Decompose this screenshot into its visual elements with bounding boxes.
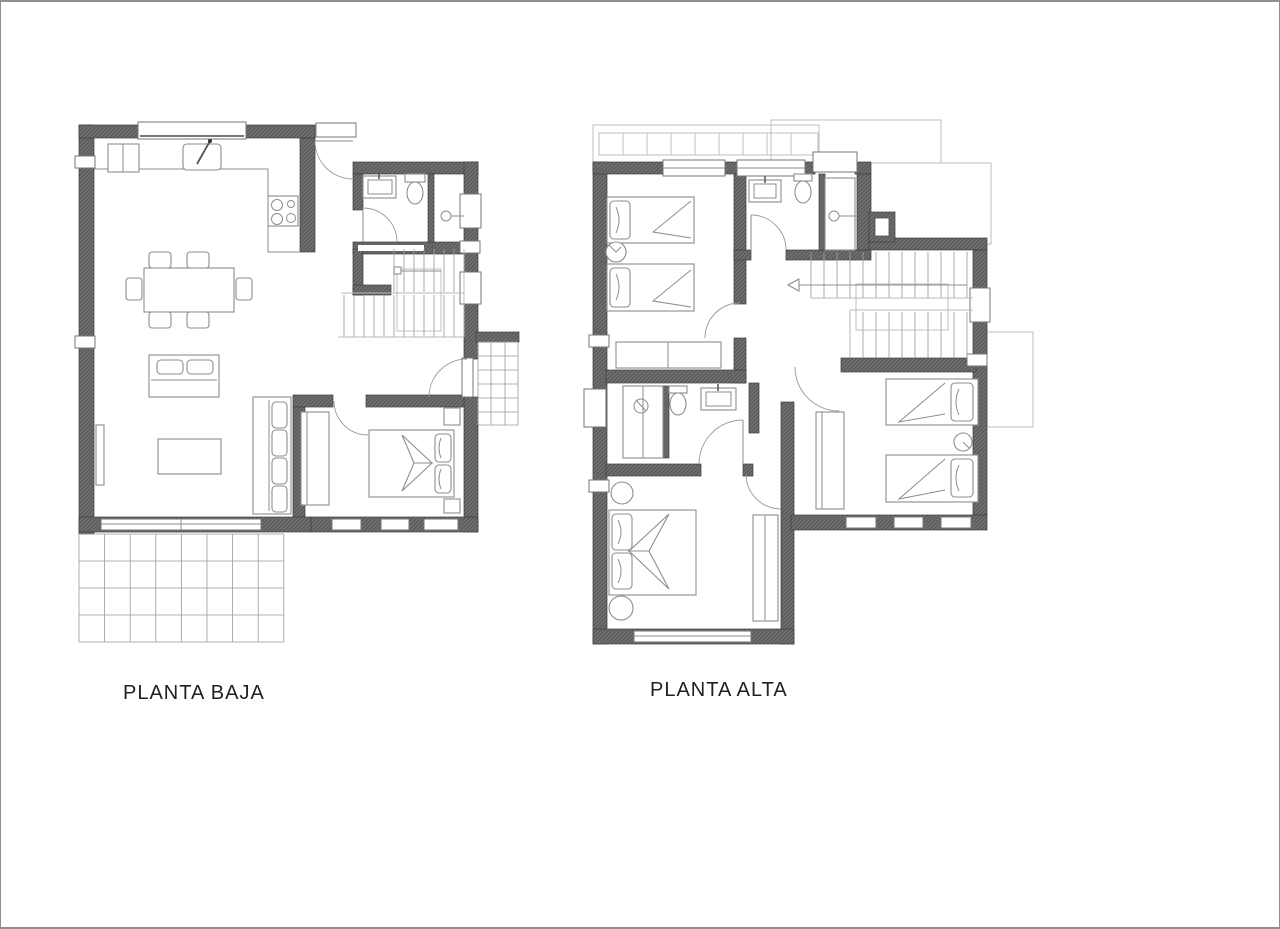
porch-tiles [476,332,519,425]
chair [187,252,209,268]
floor-plan-sheet: PLANTA BAJA PLANTA ALTA [0,0,1280,929]
sofa-cushion [272,402,287,428]
wardrobe [816,412,844,509]
stair-window [970,288,990,322]
sofa-cushion [272,458,287,484]
wall-joint [460,241,480,253]
bathroom-window [584,389,606,427]
toilet-tank [405,174,425,182]
twin-bedroom-left [606,197,721,368]
wardrobe [301,412,329,505]
bedroom2-door-arc [795,367,839,411]
pillow [951,459,973,497]
pillow [610,268,630,307]
kitchen-sink [183,144,221,170]
wall-joint [589,335,609,347]
sofa-cushion [157,360,183,374]
floor-plan-drawing: PLANTA BAJA PLANTA ALTA [1,2,1280,929]
bedroom-window [941,517,971,528]
bedroom1-door-arc [705,303,740,338]
bedroom-window [846,517,876,528]
coffee-table [158,439,221,474]
bathroom-door-arc [751,215,786,250]
bedroom-window [894,517,923,528]
bathroom-middle [623,384,736,458]
label-planta-baja: PLANTA BAJA [123,682,265,704]
porch-door-leaf [462,358,473,397]
sofa-cushion [272,430,287,456]
pillow [612,553,632,589]
wall-joint [75,336,95,348]
sofa-cushion [272,486,287,512]
living-dining-furniture [96,252,291,514]
nightstand [444,408,460,425]
round-nightstand [611,482,633,504]
stair-start-post [394,267,401,274]
bedroom-ground-floor [301,408,460,513]
bathroom-door-arc [363,208,397,242]
wall-joint [75,156,95,168]
pillow [435,434,451,462]
round-nightstand [609,596,633,620]
bedroom-window [332,519,361,530]
wall-joint [589,480,609,492]
chair [236,278,252,300]
planta-alta-plan [584,120,1033,644]
direction-arrow-icon [788,279,799,291]
toilet [795,181,811,203]
chair [187,312,209,328]
planta-baja-plan [75,122,519,642]
bathroom-window [460,194,481,228]
kitchen [94,139,300,252]
chair [126,278,142,300]
dining-table [144,268,234,312]
entrance-door-arc [315,141,353,179]
chair [149,312,171,328]
bathroom-ground-floor [363,172,464,242]
stair-window [460,272,481,304]
twin-bedroom-right [816,379,978,509]
pillow [435,465,451,493]
sofa-cushion [187,360,213,374]
master-door-arc [746,474,781,509]
wall-joint [967,354,987,366]
chair [149,252,171,268]
bathroom2-door-arc [699,420,743,464]
bedroom-window [424,519,458,530]
toilet-tank [794,174,812,181]
bedroom-window [381,519,409,530]
label-planta-alta: PLANTA ALTA [650,679,788,701]
bathroom-top [749,174,857,250]
pergola [599,133,818,155]
toilet [670,393,686,415]
stairs-upper-floor [788,252,973,358]
toilet [407,182,423,204]
pillow [610,201,630,239]
porch-door-arc [429,359,467,397]
shower-head-icon [441,211,451,221]
landing-window [813,152,857,172]
pillow [612,514,632,550]
pillow [951,383,973,421]
radiator [96,425,104,485]
bedroom-door-arc [334,401,368,435]
entrance-transom [316,123,356,137]
master-bedroom [609,482,778,621]
nightstand [444,499,460,513]
toilet-tank [669,386,687,393]
terrace-tiles [79,534,284,642]
